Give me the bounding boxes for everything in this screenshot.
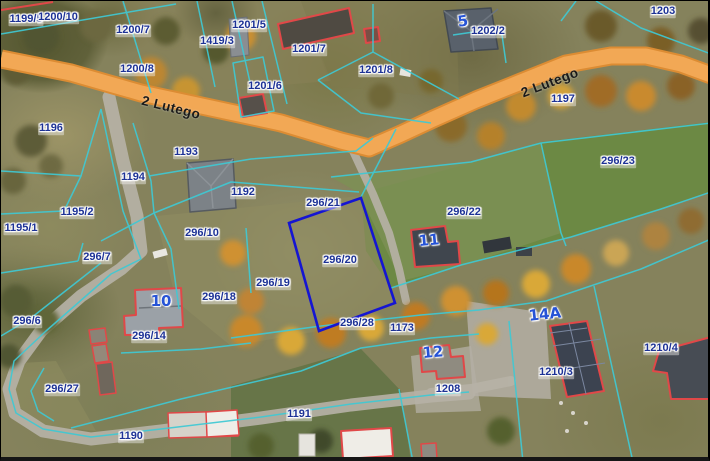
parcel-number-label: 296/18: [201, 292, 237, 304]
parcel-number-label: 296/27: [44, 384, 80, 396]
parcel-number-label: 1196: [38, 123, 64, 135]
parcel-number-label: 1173: [389, 323, 415, 335]
parcel-number-label: 1200/10: [37, 12, 79, 24]
parcel-number-label: 1195/2: [59, 207, 94, 219]
address-number-label: 10: [151, 294, 172, 310]
parcel-number-label: 296/21: [305, 198, 341, 210]
parcel-number-label: 1197: [550, 94, 576, 106]
parcel-number-label: 1210/3: [538, 367, 574, 379]
parcel-number-label: 1210/4: [643, 343, 679, 355]
parcel-number-label: 1201/6: [247, 81, 283, 93]
parcel-number-label: 296/19: [255, 278, 291, 290]
parcel-number-label: 1193: [173, 147, 199, 159]
address-number-label: 12: [422, 344, 444, 362]
parcel-number-label: 1200/7: [115, 25, 151, 37]
parcel-number-label: 296/28: [339, 318, 375, 330]
parcel-number-label: 1200/8: [119, 64, 155, 76]
parcel-number-label: 1195/1: [3, 223, 38, 235]
parcel-number-label: 1208: [435, 384, 461, 396]
parcel-number-label: 1194: [120, 172, 146, 184]
label-layer: 1199/51200/101200/71419/31200/81201/5120…: [1, 1, 708, 457]
parcel-number-label: 296/22: [446, 207, 482, 219]
parcel-number-label: 296/14: [131, 331, 167, 343]
parcel-number-label: 1203: [650, 6, 676, 18]
parcel-number-label: 1191: [286, 409, 312, 421]
parcel-number-label: 1201/8: [358, 65, 394, 77]
street-name-label: 2 Lutego: [140, 94, 202, 122]
parcel-number-label: 296/23: [600, 156, 636, 168]
parcel-number-label: 1192: [230, 187, 256, 199]
parcel-number-label: 296/10: [184, 228, 220, 240]
parcel-number-label: 296/6: [12, 316, 42, 328]
map-viewport[interactable]: 1199/51200/101200/71419/31200/81201/5120…: [0, 0, 710, 461]
address-number-label: 11: [418, 232, 440, 250]
address-number-label: 5: [457, 13, 470, 30]
parcel-number-label: 1190: [118, 431, 144, 443]
address-number-label: 14A: [528, 305, 562, 324]
parcel-number-label: 296/7: [82, 252, 112, 264]
parcel-number-label: 1419/3: [199, 36, 235, 48]
parcel-number-label: 296/20: [322, 255, 358, 267]
parcel-number-label: 1201/5: [231, 20, 267, 32]
parcel-number-label: 1201/7: [291, 44, 327, 56]
parcel-number-label: 1202/2: [470, 26, 506, 38]
